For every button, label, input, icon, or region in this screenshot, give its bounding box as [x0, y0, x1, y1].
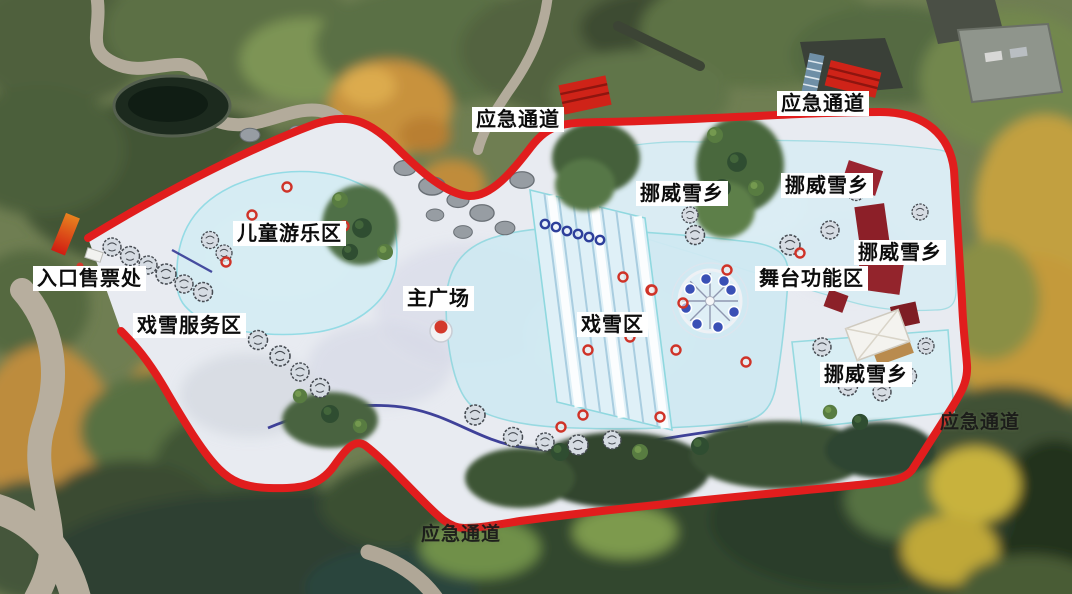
map-label-emergency-passage-top-right: 应急通道 — [777, 91, 869, 116]
map-label-text: 挪威雪乡 — [858, 240, 942, 264]
map-label-text: 应急通道 — [781, 91, 865, 115]
map-label-text: 应急通道 — [421, 523, 501, 545]
map-label-text: 挪威雪乡 — [824, 362, 908, 386]
map-label-text: 应急通道 — [940, 411, 1020, 433]
map-label-text: 儿童游乐区 — [237, 221, 342, 245]
map-label-text: 挪威雪乡 — [640, 181, 724, 205]
map-label-snow-play-service-area: 戏雪服务区 — [133, 313, 246, 338]
map-label-text: 入口售票处 — [37, 266, 142, 290]
map-label-text: 戏雪区 — [581, 312, 644, 336]
map-label-emergency-passage-bottom-right: 应急通道 — [936, 411, 1024, 435]
map-label-children-play-area: 儿童游乐区 — [233, 221, 346, 246]
map-label-snow-play-area: 戏雪区 — [577, 312, 648, 337]
map-label-stage-function-area: 舞台功能区 — [755, 266, 868, 291]
map-label-norway-snow-village-north: 挪威雪乡 — [781, 173, 873, 198]
map-label-norway-snow-village-east: 挪威雪乡 — [854, 240, 946, 265]
map-label-text: 应急通道 — [476, 107, 560, 131]
map-label-text: 挪威雪乡 — [785, 173, 869, 197]
map-label-norway-snow-village-west: 挪威雪乡 — [636, 181, 728, 206]
map-label-entrance-ticket-office: 入口售票处 — [33, 266, 146, 291]
map-label-text: 舞台功能区 — [759, 266, 864, 290]
map-label-main-plaza: 主广场 — [403, 286, 474, 311]
map-label-norway-snow-village-south: 挪威雪乡 — [820, 362, 912, 387]
label-layer: 应急通道应急通道入口售票处戏雪服务区儿童游乐区主广场戏雪区挪威雪乡挪威雪乡挪威雪… — [0, 0, 1072, 594]
map-label-text: 戏雪服务区 — [137, 313, 242, 337]
map-label-text: 主广场 — [407, 286, 470, 310]
snow-park-plan-map: 应急通道应急通道入口售票处戏雪服务区儿童游乐区主广场戏雪区挪威雪乡挪威雪乡挪威雪… — [0, 0, 1072, 594]
map-label-emergency-passage-top-center: 应急通道 — [472, 107, 564, 132]
map-label-emergency-passage-bottom-center: 应急通道 — [417, 523, 505, 547]
